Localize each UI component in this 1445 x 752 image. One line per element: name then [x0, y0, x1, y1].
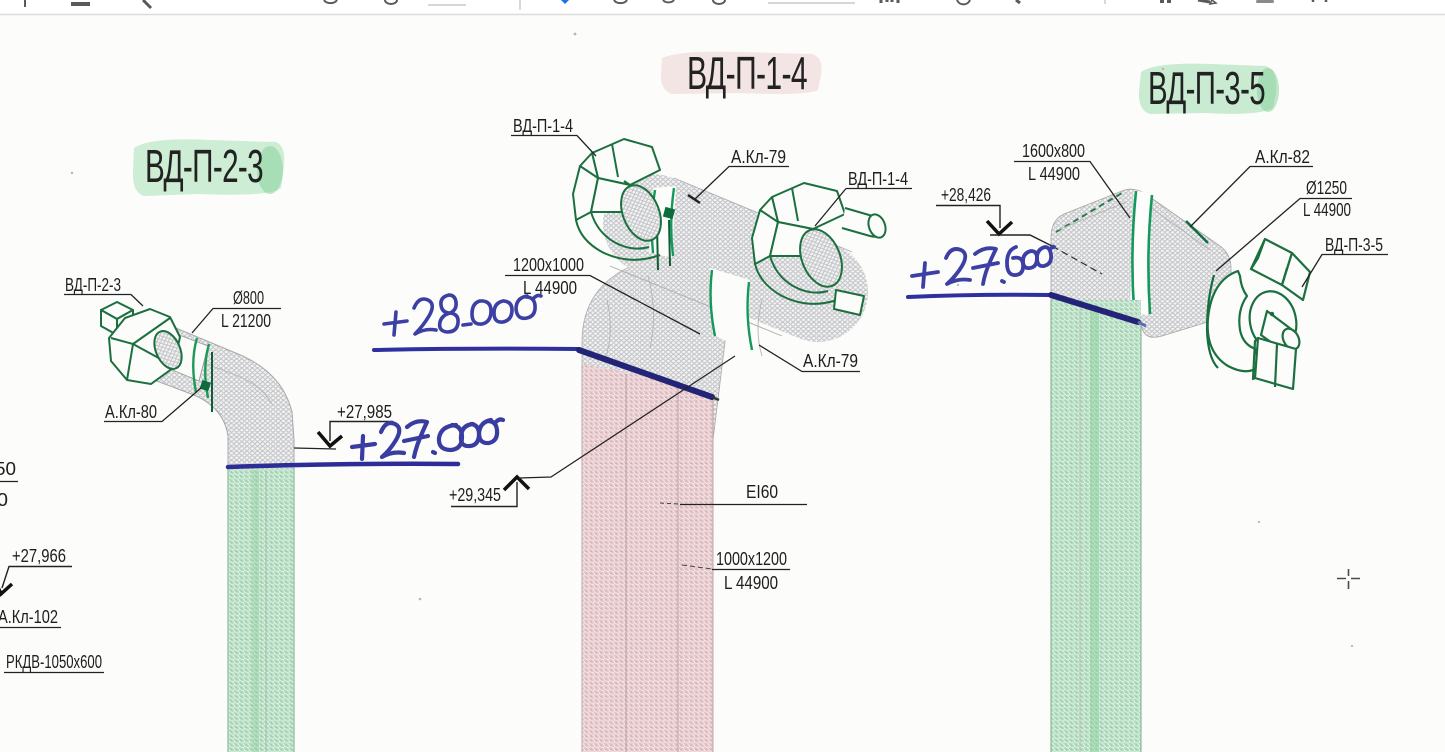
svg-text:L 44900: L 44900 [724, 573, 778, 593]
svg-text:А.Кл-80: А.Кл-80 [105, 402, 157, 422]
svg-text:EI60: EI60 [746, 482, 778, 502]
svg-text:+27,966: +27,966 [12, 546, 66, 566]
svg-text:А.Кл-79: А.Кл-79 [731, 147, 786, 167]
svg-text:L 44900: L 44900 [523, 278, 577, 298]
svg-text:50: 50 [0, 459, 16, 479]
svg-text:ВД-П-2-3: ВД-П-2-3 [65, 275, 121, 295]
svg-text:ВД-П-3-5: ВД-П-3-5 [1325, 235, 1383, 255]
svg-text:L 44900: L 44900 [1028, 164, 1080, 184]
svg-text:А.Кл-102: А.Кл-102 [0, 607, 58, 627]
svg-text:1000х1200: 1000х1200 [716, 549, 787, 569]
svg-text:1600х800: 1600х800 [1022, 141, 1085, 161]
svg-text:ВД-П-1-4: ВД-П-1-4 [513, 116, 573, 136]
svg-text:+28,426: +28,426 [941, 185, 991, 205]
svg-text:+27,985: +27,985 [337, 402, 392, 422]
svg-text:ВД-П-2-3: ВД-П-2-3 [145, 140, 263, 192]
svg-text:0: 0 [0, 490, 8, 510]
svg-text:Ø800: Ø800 [233, 288, 264, 308]
svg-text:А.Кл-82: А.Кл-82 [1255, 147, 1310, 167]
svg-text:ВД-П-1-4: ВД-П-1-4 [848, 169, 908, 189]
svg-text:Ø1250: Ø1250 [1306, 178, 1347, 198]
svg-text:+29,345: +29,345 [449, 485, 501, 505]
svg-text:ВД-П-1-4: ВД-П-1-4 [687, 47, 807, 99]
svg-text:А.Кл-79: А.Кл-79 [803, 351, 858, 371]
svg-text:L 44900: L 44900 [1303, 200, 1351, 220]
svg-text:РКДВ-1050х600: РКДВ-1050х600 [6, 652, 102, 672]
svg-text:ВД-П-3-5: ВД-П-3-5 [1148, 62, 1265, 114]
svg-text:L 21200: L 21200 [221, 311, 271, 331]
svg-text:1200х1000: 1200х1000 [513, 255, 584, 275]
